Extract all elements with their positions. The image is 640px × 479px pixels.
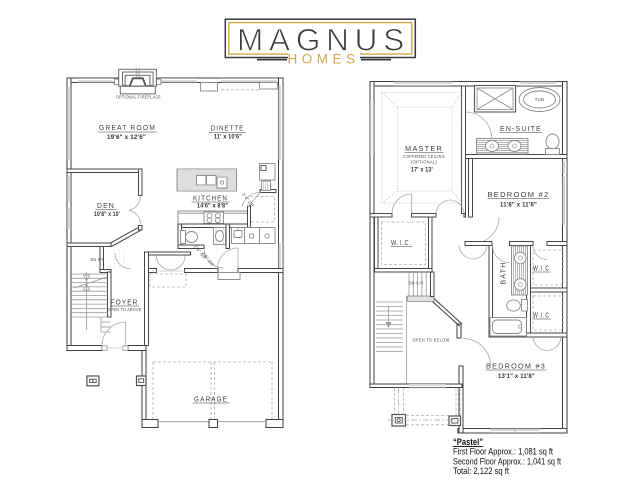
- svg-text:Second Floor Approx.: 1,041 sq: Second Floor Approx.: 1,041 sq ft: [453, 456, 561, 466]
- svg-text:OPEN TO ABOVE: OPEN TO ABOVE: [108, 307, 142, 312]
- svg-text:OPTIONAL FIREPLACE: OPTIONAL FIREPLACE: [116, 94, 161, 99]
- svg-text:DN 9-R: DN 9-R: [409, 281, 424, 286]
- svg-text:W.I.C: W.I.C: [533, 313, 550, 320]
- svg-text:EN-SUITE: EN-SUITE: [500, 126, 542, 133]
- svg-text:11' x 10'6": 11' x 10'6": [214, 134, 242, 141]
- svg-text:13'1" x 11'8": 13'1" x 11'8": [498, 373, 535, 380]
- svg-text:BEDROOM #3: BEDROOM #3: [486, 364, 546, 371]
- svg-text:BATH: BATH: [501, 262, 508, 285]
- svg-text:“Pastel”: “Pastel”: [453, 437, 483, 447]
- svg-text:OPEN TO BELOW: OPEN TO BELOW: [413, 338, 451, 343]
- svg-text:HOMES: HOMES: [287, 52, 359, 67]
- svg-text:DEN: DEN: [97, 203, 115, 210]
- svg-text:10'8" x 10': 10'8" x 10': [94, 211, 120, 218]
- svg-text:First Floor Approx.: 1,081 sq: First Floor Approx.: 1,081 sq ft: [453, 447, 553, 457]
- svg-text:TUB: TUB: [535, 97, 545, 102]
- svg-text:BEDROOM #2: BEDROOM #2: [488, 192, 550, 199]
- svg-text:MASTER: MASTER: [405, 146, 443, 153]
- svg-text:GARAGE: GARAGE: [194, 397, 228, 404]
- svg-text:(OPTIONAL): (OPTIONAL): [411, 160, 437, 165]
- svg-text:FOYER: FOYER: [111, 300, 139, 307]
- svg-text:W.I.C: W.I.C: [533, 266, 550, 273]
- svg-text:KITCHEN: KITCHEN: [193, 196, 228, 203]
- svg-text:W.I.C.: W.I.C.: [391, 240, 412, 247]
- svg-text:DINETTE: DINETTE: [211, 126, 245, 133]
- svg-text:COFFERED CEILING: COFFERED CEILING: [403, 154, 445, 159]
- svg-text:DN 9-R: DN 9-R: [91, 257, 105, 262]
- svg-text:GREAT ROOM: GREAT ROOM: [99, 125, 156, 132]
- svg-text:17' x 13': 17' x 13': [411, 167, 433, 174]
- svg-text:Total: 2,122 sq ft: Total: 2,122 sq ft: [453, 466, 509, 476]
- svg-text:19'6" x 12'6": 19'6" x 12'6": [107, 134, 146, 141]
- svg-text:14'6" x 8'8": 14'6" x 8'8": [197, 203, 228, 210]
- svg-text:11'8" x 11'6": 11'8" x 11'6": [500, 202, 537, 209]
